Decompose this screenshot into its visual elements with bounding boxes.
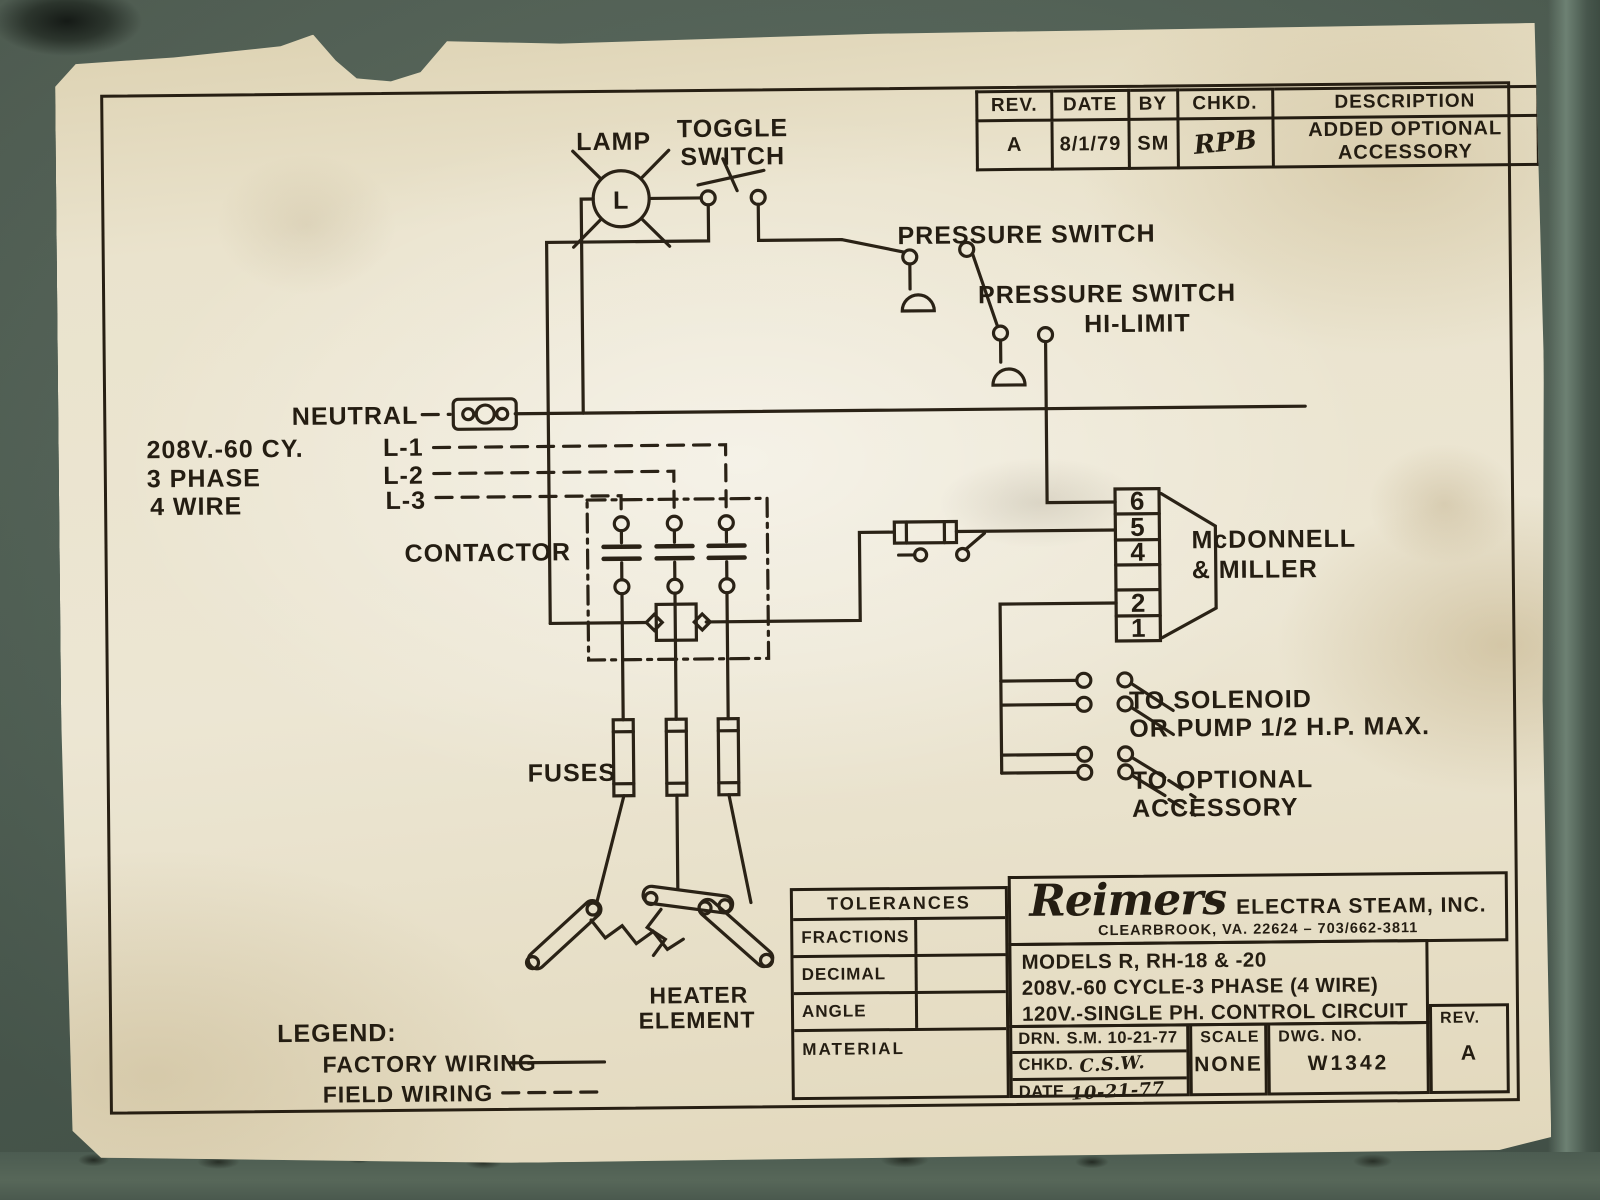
by-col-header: BY [1128,90,1177,119]
rev-box: REV. A [1429,1003,1510,1094]
rev-box-value: A [1432,1041,1506,1066]
dwg-no-box: DWG. NO. W1342 [1267,1021,1430,1096]
terminal-4: 4 [1130,537,1145,567]
tolerance-row-angle: ANGLE [794,993,1006,1032]
heater-label-1: HEATER [649,982,748,1009]
accessory-label-2: ACCESSORY [1132,793,1299,823]
chkd-label: CHKD. [1018,1056,1073,1076]
drn-label: DRN. [1018,1030,1061,1049]
terminal-1: 1 [1131,613,1146,643]
heater-label-2: ELEMENT [639,1006,756,1033]
scale-label: SCALE [1192,1026,1264,1048]
legend-title: LEGEND: [277,1019,397,1048]
photo-scene: L [0,0,1600,1200]
rev-value: A [977,120,1052,170]
load-contacts [1077,673,1133,780]
chkd-value: C.S.W. [1079,1052,1146,1077]
scale-value: NONE [1192,1053,1264,1078]
accessory-label-1: TO OPTIONAL [1132,765,1314,795]
rev-box-label: REV. [1432,1006,1506,1028]
solenoid-label-2: OR PUMP 1/2 H.P. MAX. [1129,712,1430,743]
drn-row: DRN. S.M. 10-21-77 [1012,1026,1186,1054]
company-logo: Reimers [1029,880,1226,921]
tolerance-row-decimal: DECIMAL [793,956,1005,995]
chkd-col-header: CHKD. [1177,89,1272,119]
l3-label: L-3 [385,487,426,515]
fuse-symbols [613,719,739,796]
rev-description: ADDED OPTIONAL ACCESSORY [1273,115,1538,167]
schematic-paper: L [55,23,1552,1167]
drawn-info-box: DRN. S.M. 10-21-77 CHKD. C.S.W. DATE 10-… [1009,1023,1190,1098]
hi-limit-label-2: HI-LIMIT [1084,309,1191,338]
supply-label-1: 208V.-60 CY. [146,435,303,465]
heater-element-symbol [524,884,776,972]
hi-limit-label-1: PRESSURE SWITCH [978,279,1236,309]
pressure-switch-label: PRESSURE SWITCH [897,220,1155,250]
company-address: CLEARBROOK, VA. 22624 – 703/662-3811 [1098,920,1418,939]
fractions-label: FRACTIONS [793,920,917,955]
metal-frame-right-edge [1548,0,1600,1200]
rev-by: SM [1129,119,1178,168]
material-label: MATERIAL [794,1030,1006,1060]
drn-value: S.M. 10-21-77 [1067,1029,1178,1049]
models-box: MODELS R, RH-18 & -20 208V.-60 CYCLE-3 P… [1008,939,1429,1028]
toggle-switch-label-2: SWITCH [680,142,785,171]
neutral-terminal-block [453,399,516,430]
legend-factory-label: FACTORY WIRING [322,1050,536,1078]
model-line-1: MODELS R, RH-18 & -20 [1021,946,1425,976]
pressure-switch-symbol [902,242,975,311]
contactor-symbol [587,498,769,660]
solenoid-label-1: TO SOLENOID [1129,685,1312,715]
company-name: ELECTRA STEAM, INC. [1236,893,1487,919]
tolerance-row-fractions: FRACTIONS [793,919,1005,958]
tolerances-box: TOLERANCES FRACTIONS DECIMAL ANGLE MATER… [790,886,1010,1100]
description-col-header: DESCRIPTION [1272,86,1537,118]
date-value: 10-21-77 [1070,1078,1165,1105]
scale-box: SCALE NONE [1189,1023,1268,1097]
legend-field-label: FIELD WIRING [323,1080,494,1108]
terminal-strip-name-2: & MILLER [1192,555,1318,584]
l1-label: L-1 [383,434,424,462]
revision-table: REV. DATE BY CHKD. DESCRIPTION A 8/1/79 … [975,85,1539,171]
neutral-label: NEUTRAL [292,402,419,431]
company-banner: Reimers ELECTRA STEAM, INC. CLEARBROOK, … [1008,871,1509,946]
model-line-2: 208V.-60 CYCLE-3 PHASE (4 WIRE) [1022,972,1426,1002]
chkd-row: CHKD. C.S.W. [1012,1053,1186,1081]
angle-label: ANGLE [794,994,918,1029]
lamp-label: LAMP [576,127,651,156]
date-row: DATE 10-21-77 [1013,1079,1187,1104]
lamp-letter: L [613,187,630,215]
chkd-signature: RPB [1192,125,1258,161]
terminal-strip-name-1: McDONNELL [1191,525,1356,555]
decimal-label: DECIMAL [793,957,917,992]
rev-date: 8/1/79 [1052,119,1129,169]
dwg-no-label: DWG. NO. [1270,1024,1426,1046]
tolerances-header: TOLERANCES [793,889,1005,921]
supply-label-3: 4 WIRE [150,492,242,521]
fuses-label: FUSES [528,759,617,788]
date-col-header: DATE [1052,90,1129,120]
toggle-switch-label-1: TOGGLE [677,114,788,143]
rev-chkd-signature: RPB [1178,118,1273,168]
contactor-label: CONTACTOR [404,538,571,568]
date-label: DATE [1019,1082,1065,1101]
rev-col-header: REV. [977,91,1052,121]
dwg-no-value: W1342 [1270,1051,1426,1076]
revision-row-a: A 8/1/79 SM RPB ADDED OPTIONAL ACCESSORY [977,115,1538,169]
supply-label-2: 3 PHASE [147,464,261,493]
corner-shadow-blob [0,0,142,56]
